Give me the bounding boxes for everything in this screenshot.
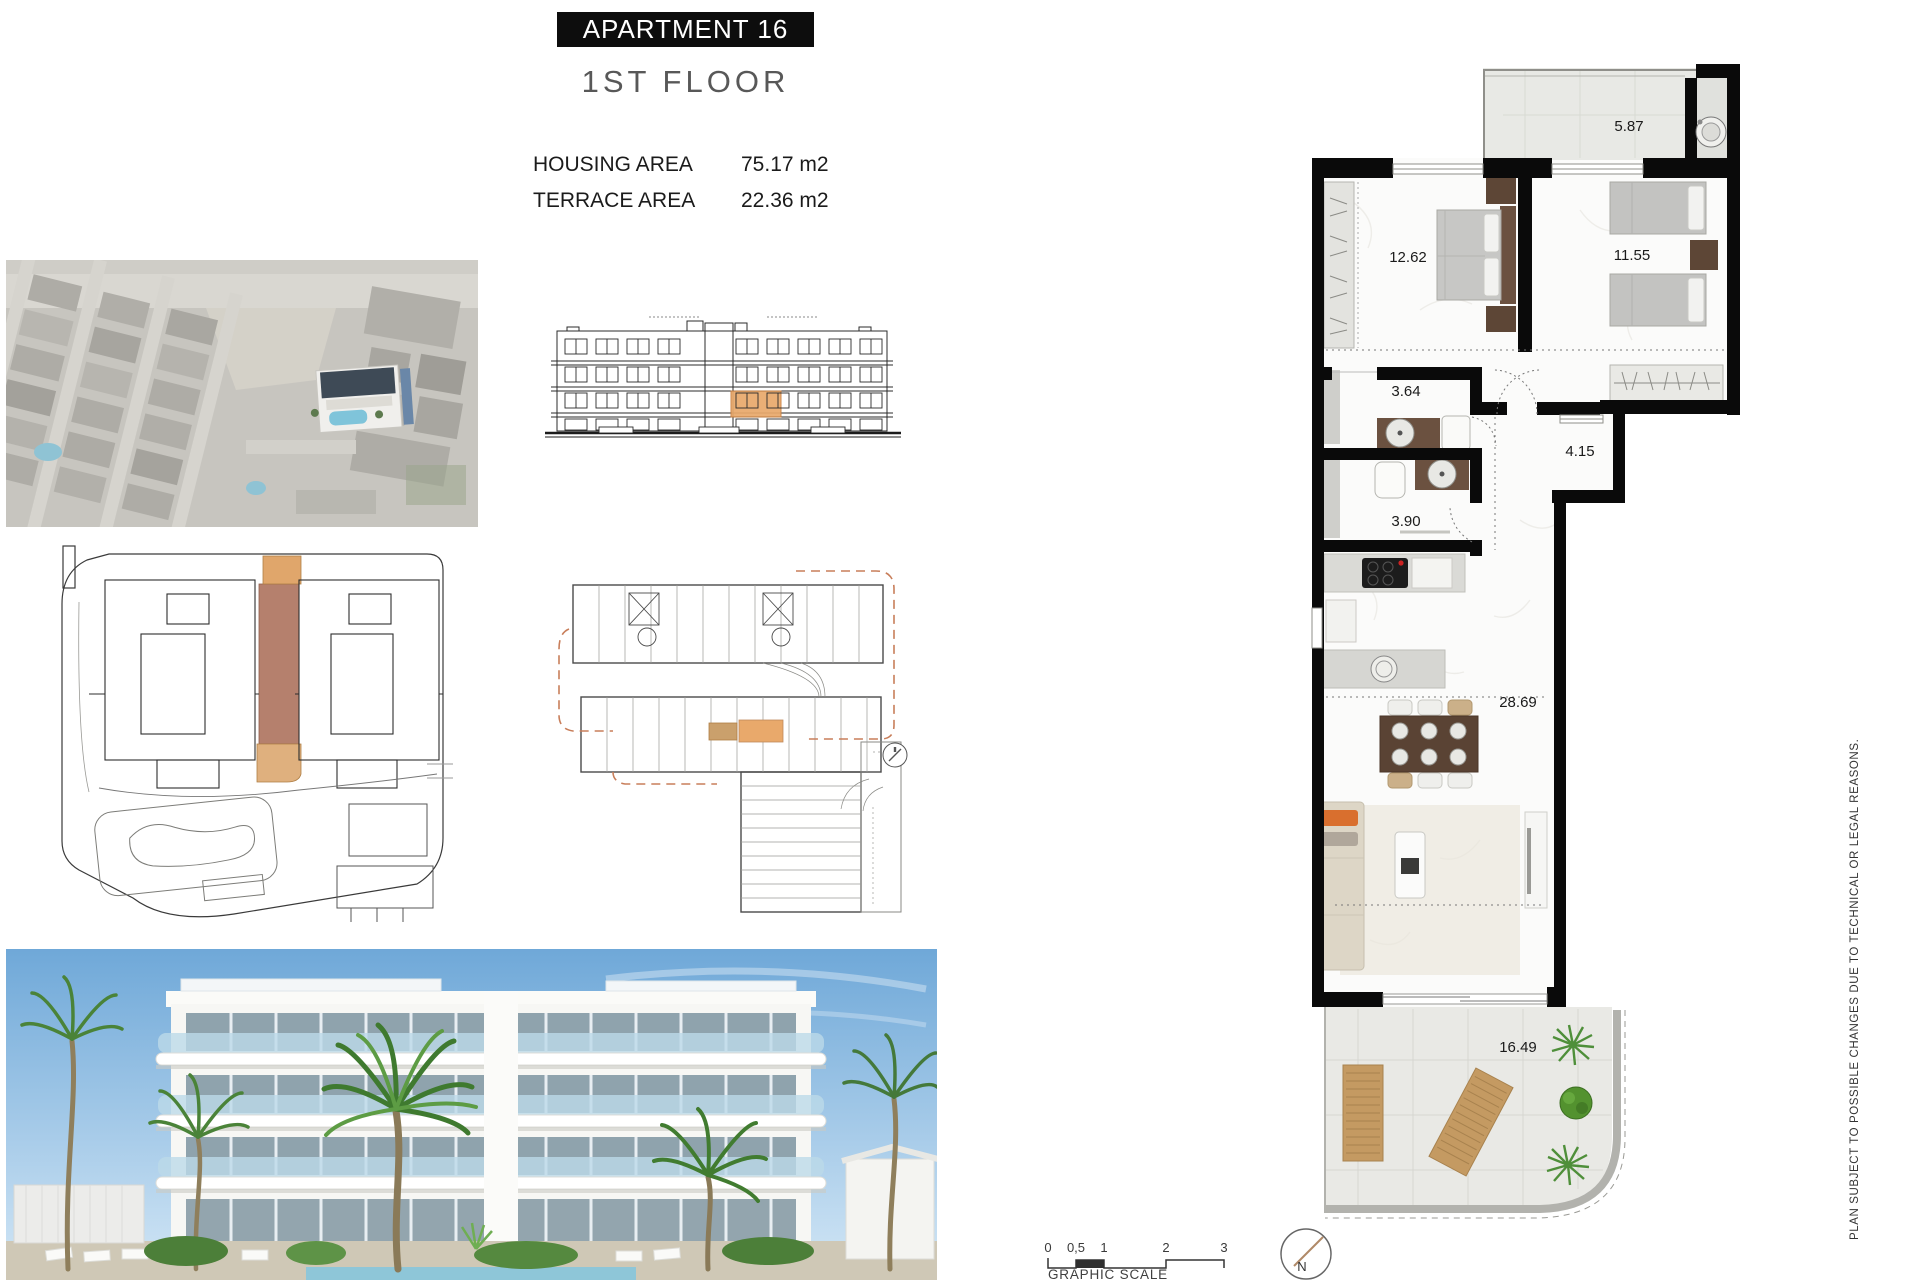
- bedroom-second-furniture: [1610, 182, 1723, 401]
- apartment-floor-plan: 5.87 12.62 11.55 3.64 4.15 3.90 28.69 16…: [1280, 60, 1750, 1280]
- housing-area-row: HOUSING AREA 75.17 m2: [533, 153, 829, 177]
- pillow: [1484, 258, 1499, 296]
- terrace-area-row: TERRACE AREA 22.36 m2: [533, 189, 829, 213]
- amenities-outline: [93, 764, 453, 922]
- tv-icon: [1527, 828, 1531, 894]
- shower-tray-icon: [1442, 416, 1470, 450]
- highlighted-unit-top: [263, 556, 301, 584]
- terrace-area-value: 22.36 m2: [741, 189, 829, 213]
- scale-tick-3: 3: [1220, 1240, 1227, 1255]
- fridge: [1326, 600, 1356, 642]
- page-title: APARTMENT 16: [557, 12, 814, 47]
- area-summary: HOUSING AREA 75.17 m2 TERRACE AREA 22.36…: [533, 153, 829, 225]
- nightstand: [1486, 306, 1516, 332]
- room-area-bathroom-2: 3.90: [1391, 513, 1420, 530]
- scale-tick-0: 0: [1044, 1240, 1051, 1255]
- room-area-bedroom-main: 12.62: [1389, 249, 1427, 266]
- rug: [1340, 805, 1520, 975]
- pillow: [1484, 214, 1499, 252]
- development-parcel: [308, 364, 414, 433]
- room-area-terrace-main: 16.49: [1499, 1039, 1537, 1056]
- plan-compass-icon: [883, 743, 907, 767]
- north-arrow-icon: N: [1281, 1229, 1331, 1279]
- toilet-icon: [1375, 462, 1405, 498]
- washing-machine-icon: [1696, 117, 1726, 147]
- graphic-scale: 0 0,5 1 2 3 GRAPHIC SCALE: [1040, 1240, 1260, 1280]
- aerial-photo: [6, 260, 478, 527]
- scale-ticks: 0 0,5 1 2 3: [1044, 1240, 1227, 1255]
- room-area-hall: 4.15: [1565, 443, 1594, 460]
- sun-lounger: [1343, 1065, 1383, 1161]
- bed-headboard: [1500, 206, 1516, 304]
- nightstand: [1690, 240, 1718, 270]
- sofa-pillow: [1320, 832, 1358, 846]
- apartment-title-text: APARTMENT 16: [583, 14, 789, 45]
- housing-area-label: HOUSING AREA: [533, 153, 741, 177]
- cooktop-indicator: [1398, 560, 1403, 565]
- room-area-bathroom-1: 3.64: [1391, 383, 1420, 400]
- highlighted-unit-plan-2: [709, 723, 737, 740]
- building-elevation: [539, 309, 906, 447]
- highlighted-unit-bottom: [257, 744, 301, 782]
- scale-tick-1: 1: [1100, 1240, 1107, 1255]
- scale-tick-2: 2: [1162, 1240, 1169, 1255]
- brochure-page: APARTMENT 16 1ST FLOOR HOUSING AREA 75.1…: [0, 0, 1920, 1280]
- highlighted-unit-strip: [259, 584, 299, 744]
- housing-area-value: 75.17 m2: [741, 153, 829, 177]
- island-sink-icon: [1371, 656, 1397, 682]
- floor-subtitle: 1ST FLOOR: [507, 64, 864, 100]
- sliding-door: [1383, 994, 1547, 1004]
- nightstand: [1486, 178, 1516, 204]
- room-area-bedroom-second: 11.55: [1614, 247, 1650, 264]
- living-furniture: [1316, 802, 1547, 975]
- apartment-dashed-boundary: [559, 571, 894, 784]
- disclaimer-text: PLAN SUBJECT TO POSSIBLE CHANGES DUE TO …: [1849, 795, 1873, 1240]
- room-area-living: 28.69: [1499, 694, 1537, 711]
- highlighted-unit-elevation: [731, 391, 781, 417]
- elevation-windows: [565, 339, 882, 430]
- dining-furniture: [1380, 700, 1478, 788]
- building-floor-plan: [551, 557, 912, 930]
- partition-lines: [599, 585, 893, 907]
- rendered-building: [156, 979, 826, 1259]
- sofa-pillow: [1320, 810, 1358, 826]
- north-label: N: [1297, 1259, 1306, 1274]
- scale-tick-05: 0,5: [1067, 1240, 1085, 1255]
- bush-plant-icon: [1560, 1087, 1592, 1119]
- terrace-area-label: TERRACE AREA: [533, 189, 741, 213]
- graphic-scale-label: GRAPHIC SCALE: [1048, 1267, 1168, 1280]
- highlighted-unit-plan: [739, 720, 783, 742]
- site-plan: [49, 542, 453, 930]
- building-render-photo: [6, 949, 937, 1280]
- room-area-terrace-top: 5.87: [1614, 118, 1643, 135]
